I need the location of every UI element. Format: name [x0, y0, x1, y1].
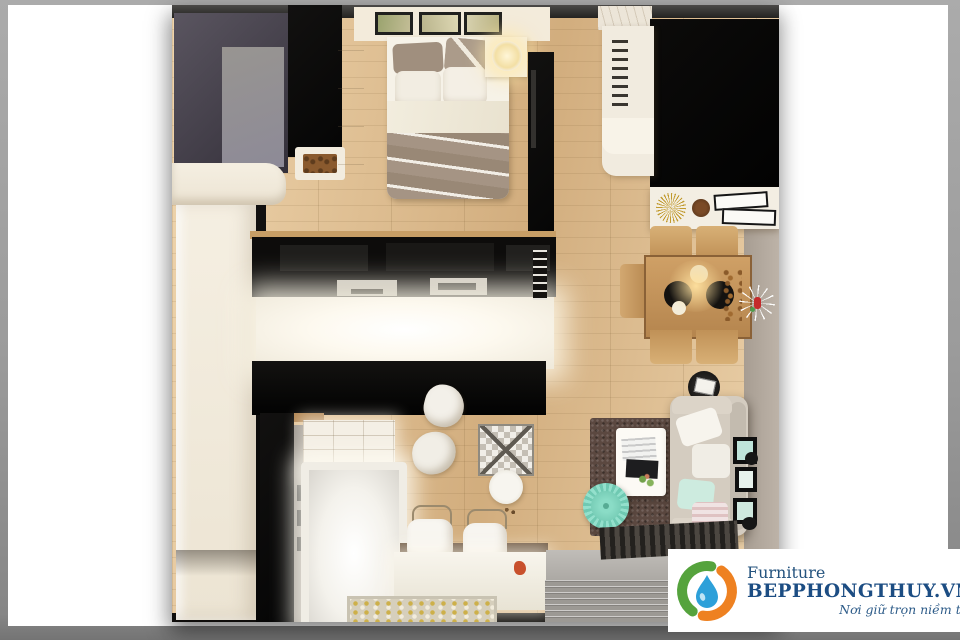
- watermark-brand: Furniture: [747, 564, 960, 582]
- ladder-shelf: [533, 250, 547, 300]
- wall-art-frame-1: [375, 12, 413, 35]
- bedroom-black-closet: [288, 5, 342, 157]
- dining-chair-left: [620, 264, 646, 318]
- wall-frame-mint-2: [735, 467, 757, 492]
- frame-art: [422, 15, 458, 32]
- white-bookshelf: [602, 26, 654, 176]
- sofa-pillow-white-2: [692, 444, 730, 478]
- corridor-shadow: [176, 550, 258, 576]
- wardrobe-top-panel: [222, 47, 284, 167]
- tv-wardrobe-black: [650, 19, 779, 187]
- clock-accent: [750, 307, 755, 312]
- red-figurine: [514, 561, 526, 575]
- bepphongthuy-logo-icon: [675, 557, 739, 625]
- round-stool: [489, 470, 523, 504]
- curved-white-shelf: [172, 163, 286, 205]
- watermark-domain: BEPPHONGTHUY.VN: [747, 582, 960, 603]
- open-shelf: [386, 243, 494, 271]
- dining-chair-bottom-2: [696, 330, 738, 364]
- rendered-floorplan-image: Furniture BEPPHONGTHUY.VN Nơi giữ trọn n…: [0, 0, 960, 640]
- wall-art-frame-2: [419, 12, 461, 35]
- watermark-box: Furniture BEPPHONGTHUY.VN Nơi giữ trọn n…: [668, 549, 960, 632]
- round-wall-sconce-1: [745, 452, 758, 465]
- wall-tv: [531, 70, 536, 148]
- range-hood: [337, 280, 397, 296]
- shelf-lower-tier: [602, 118, 654, 154]
- gold-starburst-decor: [656, 193, 686, 223]
- room2-wardrobe-band: [252, 361, 546, 415]
- checkered-pyramid-lamp: [478, 424, 534, 476]
- dining-chair-top-1: [650, 226, 692, 258]
- coffee-table: [616, 428, 666, 496]
- sink-basin: [438, 283, 476, 290]
- white-console: [650, 187, 779, 229]
- tablet-on-table: [694, 377, 717, 396]
- pouf-button: [603, 503, 609, 509]
- frame-art: [739, 471, 753, 488]
- white-pillow-2: [443, 67, 487, 105]
- dining-chair-top-2: [696, 226, 738, 258]
- apartment-plan-render: [172, 5, 779, 622]
- food-items: [722, 269, 742, 321]
- chandelier-glow: [668, 260, 724, 312]
- stove-grill: [351, 289, 383, 294]
- textured-gray-mat: [545, 580, 677, 622]
- magazine-1: [621, 437, 656, 461]
- books: [612, 40, 628, 106]
- serving-tray-2: [722, 208, 777, 226]
- watermark-tagline: Nơi giữ trọn niềm tin: [747, 603, 960, 617]
- dining-chair-bottom-1: [650, 330, 692, 364]
- taupe-pillow-1: [392, 42, 444, 75]
- table-plant: [636, 472, 658, 490]
- clock-center: [754, 297, 761, 309]
- kitchen-sink: [430, 278, 487, 295]
- round-wall-sconce-2: [742, 517, 757, 530]
- kitchen-upper-cabinets: [252, 237, 556, 297]
- room2-left-wall: [260, 413, 294, 622]
- starburst-wall-clock: [739, 285, 775, 321]
- striped-blanket: [387, 133, 509, 199]
- open-shelf: [280, 245, 368, 271]
- wooden-bowl: [692, 199, 710, 217]
- bedside-lamp: [492, 41, 522, 71]
- patterned-doormat: [347, 596, 497, 622]
- frame-art: [467, 15, 499, 32]
- kitchen-countertop: [256, 297, 554, 369]
- wall-art-frame-3: [464, 12, 502, 35]
- firewood-logs: [303, 154, 337, 173]
- frame-art: [378, 15, 410, 32]
- mint-pleated-pouf: [583, 483, 629, 529]
- watermark-text-block: Furniture BEPPHONGTHUY.VN Nơi giữ trọn n…: [747, 564, 960, 617]
